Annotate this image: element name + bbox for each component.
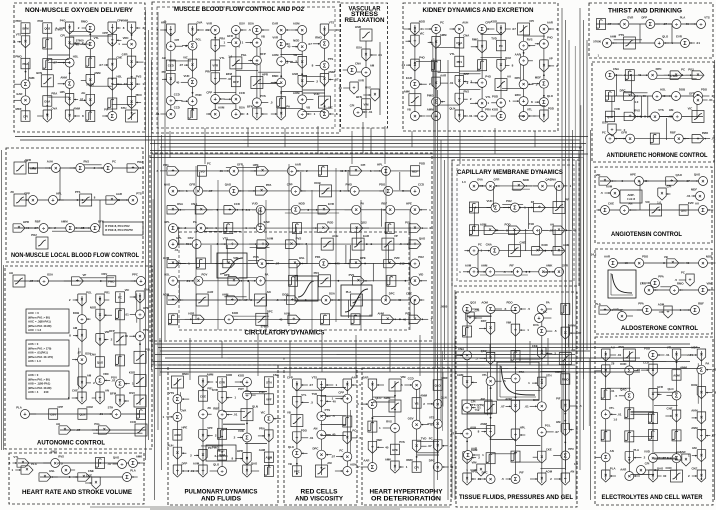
svg-text:.01: .01 — [468, 114, 473, 118]
svg-text:+: + — [255, 41, 258, 47]
svg-text:.07: .07 — [500, 404, 505, 408]
svg-text:BFN: BFN — [356, 95, 362, 99]
svg-text:×: × — [227, 261, 230, 267]
svg-text:ANM: ANM — [94, 71, 101, 75]
svg-text:÷: ÷ — [514, 432, 517, 438]
svg-text:QLO: QLO — [662, 35, 669, 39]
svg-text:40: 40 — [339, 86, 343, 90]
svg-text:.5: .5 — [337, 298, 340, 302]
svg-text:×: × — [110, 197, 113, 203]
svg-text:+: + — [51, 198, 54, 204]
svg-text:HPE: HPE — [392, 448, 398, 452]
svg-text:AAR: AAR — [363, 459, 369, 463]
svg-text:AUM: AUM — [163, 256, 170, 260]
svg-text:HEART HYPERTROPHY: HEART HYPERTROPHY — [370, 489, 444, 496]
svg-text:PC: PC — [499, 44, 503, 48]
svg-text:÷: ÷ — [481, 81, 484, 87]
svg-text:.01: .01 — [617, 353, 622, 357]
svg-text:×: × — [413, 26, 416, 32]
svg-text:÷: ÷ — [371, 445, 374, 451]
svg-text:CPI: CPI — [60, 34, 65, 38]
svg-text:÷: ÷ — [458, 96, 461, 102]
svg-text:40: 40 — [686, 261, 690, 265]
svg-text:40: 40 — [287, 45, 291, 49]
svg-text:CCD: CCD — [408, 377, 414, 381]
svg-text:PC: PC — [429, 436, 433, 440]
svg-text:CPP: CPP — [338, 390, 344, 394]
svg-text:÷: ÷ — [466, 406, 469, 412]
svg-text:KIDNEY DYNAMICS AND EXCRETI: KIDNEY DYNAMICS AND EXCRETION — [423, 7, 534, 14]
svg-text:×: × — [458, 79, 461, 85]
svg-text:÷: ÷ — [221, 413, 224, 419]
svg-text:CIRCULATORY DYNAMICS: CIRCULATORY DYNAMICS — [245, 330, 325, 337]
svg-text:OVA: OVA — [197, 21, 203, 25]
svg-text:AND VISCOSITY: AND VISCOSITY — [295, 496, 344, 503]
svg-text:×: × — [700, 352, 703, 358]
svg-text:AHM: AHM — [610, 35, 617, 39]
svg-text:PPC: PPC — [568, 447, 574, 451]
svg-text:PLA: PLA — [31, 462, 37, 466]
svg-text:RVS: RVS — [365, 86, 371, 90]
svg-text:.5: .5 — [248, 28, 251, 32]
svg-text:PO2: PO2 — [31, 233, 37, 237]
svg-text:KOD: KOD — [620, 362, 626, 366]
svg-text:×: × — [653, 114, 656, 120]
svg-text:.5: .5 — [503, 270, 506, 274]
svg-text:PVS: PVS — [253, 255, 259, 259]
svg-text:÷: ÷ — [414, 38, 417, 44]
svg-text:×: × — [24, 39, 27, 45]
svg-text:÷: ÷ — [229, 207, 232, 213]
svg-text:AUH: AUH — [332, 234, 338, 238]
svg-text:GFR: GFR — [493, 178, 499, 182]
svg-text:.5: .5 — [600, 191, 603, 195]
svg-text:.07: .07 — [77, 351, 81, 355]
svg-text:VP: VP — [571, 349, 575, 353]
svg-text:PC: PC — [681, 271, 685, 275]
svg-text:÷: ÷ — [673, 288, 676, 294]
svg-text:×: × — [522, 82, 525, 88]
svg-text:×: × — [81, 380, 84, 386]
svg-text:×: × — [138, 334, 141, 340]
svg-text:×: × — [623, 22, 626, 28]
svg-text:×: × — [629, 137, 632, 143]
svg-text:PTS: PTS — [75, 190, 81, 194]
svg-text:×: × — [169, 112, 172, 118]
svg-text:QLN: QLN — [441, 396, 447, 400]
svg-text:VIC: VIC — [125, 288, 130, 292]
svg-text:PO2: PO2 — [418, 255, 424, 259]
svg-text:CPP: CPP — [206, 91, 212, 95]
svg-text:.07: .07 — [607, 22, 612, 26]
svg-text:1.0: 1.0 — [657, 201, 661, 205]
svg-text:PIF: PIF — [162, 70, 167, 74]
svg-text:×: × — [628, 474, 631, 480]
svg-text:POD: POD — [419, 162, 425, 166]
svg-text:GFR: GFR — [562, 264, 568, 268]
svg-text:×: × — [698, 194, 701, 200]
svg-text:÷: ÷ — [221, 469, 224, 475]
svg-text:.07: .07 — [275, 262, 280, 266]
svg-text:×: × — [232, 278, 235, 284]
svg-text:+: + — [301, 97, 304, 103]
svg-text:CNA: CNA — [550, 178, 556, 182]
svg-text:OVA: OVA — [533, 323, 539, 327]
svg-text:AN: AN — [628, 202, 632, 206]
svg-text:×: × — [95, 480, 98, 486]
svg-text:MUSCLE BLOOD FLOW CONTROL: MUSCLE BLOOD FLOW CONTROL AND PO2 — [174, 6, 304, 13]
svg-text:DPC: DPC — [656, 67, 662, 71]
svg-text:÷: ÷ — [514, 376, 517, 382]
svg-text:×: × — [517, 183, 520, 189]
svg-text:40: 40 — [176, 80, 180, 84]
svg-text:VTL: VTL — [13, 455, 19, 459]
svg-text:BFM: BFM — [22, 26, 29, 30]
svg-text:×: × — [246, 456, 249, 462]
svg-text:×: × — [355, 208, 358, 214]
svg-text:÷: ÷ — [294, 189, 297, 195]
svg-text:VTL: VTL — [485, 95, 491, 99]
svg-text:PLA: PLA — [680, 16, 686, 20]
svg-text:AAR: AAR — [620, 468, 626, 472]
svg-text:÷: ÷ — [656, 94, 659, 100]
svg-text:×: × — [82, 474, 85, 480]
svg-text:×: × — [68, 97, 71, 103]
svg-text:PIF: PIF — [556, 397, 561, 401]
svg-text:1.0: 1.0 — [462, 180, 466, 184]
svg-text:RBF: RBF — [381, 202, 387, 206]
svg-text:VTL: VTL — [94, 36, 100, 40]
svg-text:HPE: HPE — [406, 202, 412, 206]
svg-text:CKE: CKE — [86, 474, 92, 478]
svg-text:PDO: PDO — [379, 183, 386, 187]
svg-text:×: × — [354, 261, 357, 267]
svg-text:×: × — [675, 352, 678, 358]
svg-text:OR DETERIORATION: OR DETERIORATION — [371, 496, 441, 503]
svg-text:POD: POD — [327, 220, 333, 224]
svg-text:×: × — [357, 278, 360, 284]
svg-text:.5: .5 — [528, 307, 531, 311]
svg-text:PR1: PR1 — [104, 291, 110, 295]
svg-text:×: × — [394, 464, 397, 470]
svg-text:VUD: VUD — [252, 202, 258, 206]
svg-text:PGL: PGL — [145, 347, 151, 351]
svg-text:.01: .01 — [309, 436, 314, 440]
svg-text:×: × — [628, 93, 631, 99]
svg-text:MDF: MDF — [15, 107, 21, 111]
svg-text:×: × — [540, 380, 543, 386]
svg-text:VIC: VIC — [688, 107, 693, 111]
svg-text:RMO: RMO — [272, 74, 279, 78]
svg-text:.5: .5 — [654, 468, 657, 472]
svg-text:×: × — [280, 111, 283, 117]
svg-text:.01: .01 — [233, 413, 238, 417]
svg-text:.01: .01 — [686, 194, 691, 198]
svg-text:BFM: BFM — [226, 72, 233, 76]
svg-text:NON-MUSCLE OXYGEN DELIVERY: NON-MUSCLE OXYGEN DELIVERY — [25, 7, 134, 14]
svg-text:×: × — [371, 382, 374, 388]
svg-text:PRA: PRA — [51, 92, 57, 96]
svg-text:PPA: PPA — [638, 302, 644, 306]
svg-text:CCD: CCD — [174, 92, 180, 96]
svg-text:÷: ÷ — [172, 168, 175, 174]
svg-text:+: + — [537, 316, 540, 322]
svg-text:.01: .01 — [174, 248, 178, 252]
svg-text:40: 40 — [332, 433, 336, 437]
svg-text:×: × — [290, 241, 293, 247]
svg-text:RVS: RVS — [58, 455, 64, 459]
svg-text:DPC: DPC — [312, 446, 318, 450]
svg-text:AMM: AMM — [266, 456, 273, 460]
svg-text:VUD: VUD — [613, 308, 619, 312]
svg-text:VUD: VUD — [487, 199, 493, 203]
svg-text:×: × — [489, 379, 492, 385]
svg-text:ELECTROLYTES AND CELL WATER: ELECTROLYTES AND CELL WATER — [602, 494, 703, 501]
svg-text:×: × — [22, 460, 25, 466]
svg-text:×: × — [346, 435, 349, 441]
svg-text:RMO: RMO — [677, 282, 684, 286]
svg-text:AMM: AMM — [680, 366, 687, 370]
svg-text:×: × — [301, 60, 304, 66]
svg-text:PR1: PR1 — [314, 271, 320, 275]
svg-text:CKE: CKE — [546, 448, 552, 452]
svg-text:CPP: CPP — [57, 405, 63, 409]
svg-text:Z8: Z8 — [207, 406, 211, 410]
svg-text:DPC: DPC — [267, 309, 273, 313]
svg-text:ANM: ANM — [60, 76, 67, 80]
svg-text:÷: ÷ — [228, 317, 231, 323]
svg-text:+: + — [234, 112, 237, 118]
svg-text:×: × — [64, 427, 67, 433]
svg-text:EVR: EVR — [212, 388, 218, 392]
svg-text:÷: ÷ — [130, 25, 133, 31]
svg-text:VTS: VTS — [312, 376, 318, 380]
svg-text:×: × — [414, 225, 417, 231]
svg-text:DOB: DOB — [314, 181, 320, 185]
svg-text:RBF: RBF — [213, 406, 219, 410]
svg-text:HSL: HSL — [73, 54, 79, 58]
svg-text:AMK: AMK — [28, 76, 34, 80]
svg-text:AMK: AMK — [404, 90, 410, 94]
svg-text:CAPILLARY MEMBRANE DYNAMICS: CAPILLARY MEMBRANE DYNAMICS — [457, 169, 563, 176]
svg-text:VTS: VTS — [704, 16, 710, 20]
svg-text:AMK: AMK — [385, 458, 391, 462]
svg-text:40: 40 — [336, 262, 340, 266]
svg-text:×: × — [31, 198, 34, 204]
svg-text:VIC: VIC — [543, 310, 548, 314]
svg-text:×: × — [701, 261, 704, 267]
svg-text:QLO: QLO — [213, 463, 220, 467]
svg-text:OVA: OVA — [180, 409, 186, 413]
svg-text:OSA: OSA — [356, 46, 362, 50]
svg-text:×: × — [620, 314, 623, 320]
svg-text:×: × — [346, 382, 349, 388]
svg-text:VIM: VIM — [364, 102, 370, 106]
svg-text:CPI: CPI — [667, 185, 672, 189]
svg-text:×: × — [172, 207, 175, 213]
svg-text:×: × — [197, 279, 200, 285]
svg-text:CCD: CCD — [130, 420, 136, 424]
svg-text:×: × — [214, 112, 217, 118]
svg-text:.07: .07 — [711, 434, 716, 438]
svg-text:AAR: AAR — [207, 290, 213, 294]
svg-text:.5: .5 — [359, 383, 362, 387]
svg-text:OSV: OSV — [408, 416, 414, 420]
svg-text:VTS: VTS — [169, 391, 175, 395]
svg-text:KOD: KOD — [226, 373, 232, 377]
svg-text:÷: ÷ — [76, 278, 79, 284]
svg-text:×: × — [613, 191, 616, 197]
svg-text:40: 40 — [544, 270, 548, 274]
svg-text:AM: AM — [87, 373, 92, 377]
svg-text:AAR: AAR — [515, 53, 521, 57]
svg-text:×: × — [604, 368, 607, 374]
svg-text:DPC: DPC — [515, 76, 521, 80]
svg-text:P4O: P4O — [528, 222, 534, 226]
svg-text:DPC: DPC — [389, 292, 395, 296]
svg-text:VVR: VVR — [394, 256, 400, 260]
svg-text:PTS: PTS — [328, 57, 334, 61]
svg-text:÷: ÷ — [414, 261, 417, 267]
svg-text:QO2: QO2 — [44, 26, 50, 30]
svg-text:VB: VB — [293, 53, 297, 57]
svg-text:OSA: OSA — [239, 106, 245, 110]
svg-text:HSR: HSR — [292, 72, 298, 76]
svg-text:NOD: NOD — [523, 178, 529, 182]
svg-text:HM: HM — [692, 446, 697, 450]
svg-text:EVR: EVR — [328, 202, 334, 206]
svg-text:÷: ÷ — [195, 242, 198, 248]
svg-text:VIM: VIM — [506, 321, 512, 325]
svg-text:÷: ÷ — [564, 476, 567, 482]
svg-text:.07: .07 — [76, 428, 81, 432]
svg-text:QAO: QAO — [676, 173, 683, 177]
svg-text:PMO: PMO — [702, 131, 709, 135]
svg-text:AOM: AOM — [673, 373, 680, 377]
svg-text:PPA: PPA — [266, 183, 272, 187]
svg-text:VIC: VIC — [183, 56, 188, 60]
svg-text:VB: VB — [664, 255, 668, 259]
svg-text:AN: AN — [570, 470, 574, 474]
svg-text:×: × — [697, 72, 700, 78]
svg-text:CPP: CPP — [287, 183, 293, 187]
svg-text:57600: 57600 — [670, 74, 678, 78]
svg-text:.5: .5 — [615, 394, 618, 398]
svg-text:×: × — [280, 28, 283, 34]
svg-text:÷: ÷ — [675, 94, 678, 100]
svg-text:÷: ÷ — [473, 270, 476, 276]
svg-text:VPF: VPF — [207, 426, 213, 430]
svg-text:STH: STH — [108, 406, 114, 410]
svg-text:HPR: HPR — [262, 73, 268, 77]
svg-text:×: × — [536, 248, 539, 254]
svg-text:QLN: QLN — [79, 412, 85, 416]
svg-text:RVS: RVS — [386, 420, 392, 424]
svg-text:÷: ÷ — [609, 137, 612, 143]
svg-text:+: + — [139, 279, 142, 285]
svg-text:HM: HM — [556, 420, 561, 424]
svg-text:×: × — [415, 383, 418, 389]
svg-text:×: × — [301, 79, 304, 85]
svg-text:PIF: PIF — [519, 471, 524, 475]
svg-text:1.0: 1.0 — [574, 462, 578, 466]
svg-text:AH: AH — [81, 91, 85, 95]
svg-text:CCD: CCD — [168, 64, 174, 68]
svg-text:÷: ÷ — [522, 44, 525, 50]
svg-text:÷: ÷ — [353, 85, 356, 91]
svg-text:PC: PC — [440, 21, 444, 25]
svg-text:RMO: RMO — [472, 37, 479, 41]
svg-text:PPA: PPA — [658, 275, 664, 279]
svg-text:PTT=(VTS): PTT=(VTS) — [470, 403, 484, 407]
svg-text:÷: ÷ — [611, 127, 614, 133]
svg-text:AHM: AHM — [30, 166, 37, 170]
svg-text:TISSUE FLUIDS, PRESSURES AN: TISSUE FLUIDS, PRESSURES AND GEL — [459, 494, 573, 501]
svg-text:CKE: CKE — [72, 389, 78, 393]
svg-text:EAR: EAR — [17, 92, 23, 96]
svg-text:×: × — [700, 473, 703, 479]
svg-text:DPC: DPC — [620, 88, 626, 92]
svg-text:KOD: KOD — [129, 371, 135, 375]
svg-text:HSL: HSL — [116, 75, 122, 79]
svg-text:×: × — [324, 298, 327, 304]
svg-text:AMM: AMM — [328, 70, 335, 74]
svg-text:QO2: QO2 — [607, 115, 613, 119]
svg-text:.01: .01 — [711, 137, 716, 141]
svg-text:EVR: EVR — [628, 16, 634, 20]
svg-text:.01: .01 — [696, 41, 701, 45]
svg-text:KOD: KOD — [232, 311, 238, 315]
svg-text:÷: ÷ — [139, 312, 142, 318]
svg-text:GFR: GFR — [227, 34, 233, 38]
svg-text:÷: ÷ — [214, 76, 217, 82]
svg-text:PMO: PMO — [15, 54, 22, 58]
svg-text:2-(1/VPF): 2-(1/VPF) — [214, 454, 227, 458]
svg-text:×: × — [320, 414, 323, 420]
svg-text:AN: AN — [610, 449, 614, 453]
svg-text:CKE: CKE — [406, 292, 412, 296]
svg-text:÷: ÷ — [132, 165, 135, 171]
svg-text:PDO: PDO — [301, 428, 308, 432]
svg-text:×: × — [500, 26, 503, 32]
svg-text:PR1: PR1 — [457, 60, 463, 64]
svg-text:×: × — [415, 443, 418, 449]
svg-text:RBF: RBF — [698, 302, 704, 306]
svg-text:AM: AM — [370, 64, 375, 68]
svg-text:.07: .07 — [428, 444, 433, 448]
svg-text:STH: STH — [121, 106, 127, 110]
svg-text:240: 240 — [44, 390, 49, 394]
svg-text:QAO: QAO — [225, 183, 232, 187]
svg-text:×: × — [64, 468, 67, 474]
svg-text:CNA: CNA — [191, 202, 197, 206]
svg-text:QAO: QAO — [97, 360, 104, 364]
svg-text:PPC: PPC — [676, 451, 682, 455]
svg-text:GFR: GFR — [689, 92, 695, 96]
svg-text:÷: ÷ — [623, 208, 626, 214]
svg-text:PO2: PO2 — [688, 67, 694, 71]
svg-text:AUM: AUM — [218, 106, 225, 110]
svg-text:×: × — [542, 27, 545, 33]
svg-text:PDO: PDO — [136, 93, 143, 97]
svg-text:VIC: VIC — [328, 106, 333, 110]
svg-text:QO2: QO2 — [361, 220, 367, 224]
svg-text:VIC: VIC — [645, 200, 650, 204]
svg-text:PLA: PLA — [610, 467, 616, 471]
svg-text:×: × — [685, 457, 688, 463]
svg-text:PTS: PTS — [136, 192, 142, 196]
svg-text:×: × — [301, 28, 304, 34]
